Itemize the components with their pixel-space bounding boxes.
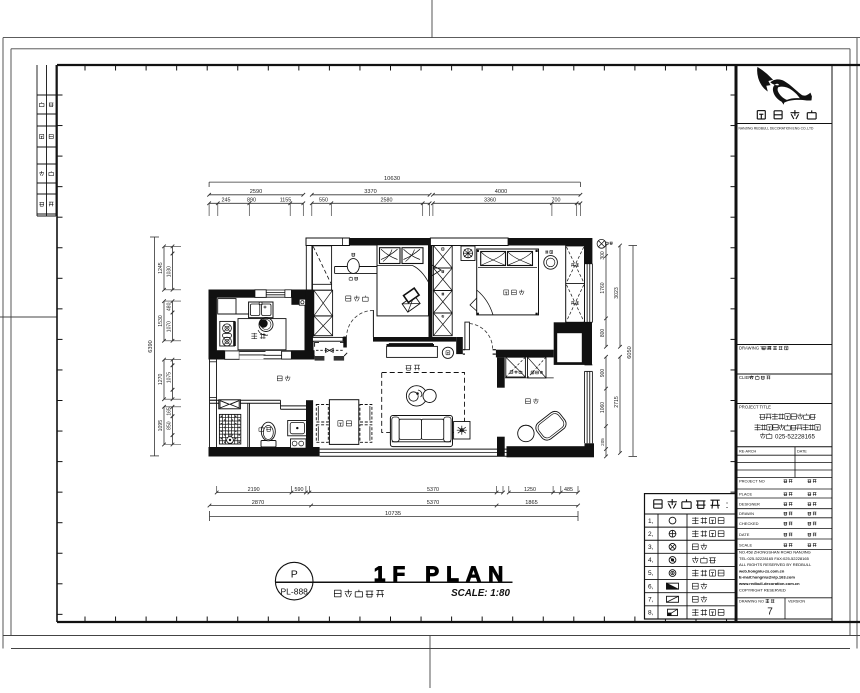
svg-text:700: 700 [552,197,561,203]
svg-text:PROJECT NO: PROJECT NO [739,479,765,484]
svg-text:1530: 1530 [158,315,164,327]
svg-text:ALL RIGHTS RESERVED BY REDBULL: ALL RIGHTS RESERVED BY REDBULL [739,562,812,567]
svg-text:165: 165 [167,407,173,416]
svg-text:3,: 3, [648,544,654,551]
svg-text:DRAWING NO: DRAWING NO [739,600,764,604]
svg-text:10735: 10735 [385,511,401,517]
svg-text:1865: 1865 [525,500,537,506]
svg-text:800: 800 [600,329,606,338]
svg-text:2580: 2580 [381,197,393,203]
svg-text:3023: 3023 [614,287,620,299]
svg-text:1,: 1, [648,518,654,525]
svg-text:5370: 5370 [427,500,439,506]
svg-text:485: 485 [564,487,573,493]
svg-text:NO.458 ZHONGSHAN ROAD NANJING: NO.458 ZHONGSHAN ROAD NANJING [739,550,811,555]
svg-text::: : [726,500,729,511]
svg-text:PL-888: PL-888 [280,587,308,597]
svg-text:3360: 3360 [484,197,496,203]
svg-text:VERSION: VERSION [788,600,805,604]
svg-text:E-mail:hongniu@vip.163.com: E-mail:hongniu@vip.163.com [739,575,795,580]
svg-text:5370: 5370 [427,487,439,493]
svg-text:1270: 1270 [158,374,164,386]
svg-text:6050: 6050 [627,346,633,358]
svg-text:DRAWN: DRAWN [739,511,754,516]
svg-text:1070: 1070 [167,321,173,332]
svg-text:RE-ARCH: RE-ARCH [739,450,757,454]
svg-text:DATE: DATE [797,450,807,454]
svg-text:PROJECT TITLE: PROJECT TITLE [739,405,771,410]
svg-text:6,: 6, [648,583,654,590]
svg-text:TEL:025-52228165 FAX:025-5222: TEL:025-52228165 FAX:025-52228165 [739,556,810,561]
svg-text:DESIGNER: DESIGNER [739,502,760,507]
svg-text:3370: 3370 [364,189,376,195]
svg-text:PLACE: PLACE [739,492,752,497]
svg-text:2870: 2870 [252,500,264,506]
svg-text:4,: 4, [648,557,654,564]
svg-text:DATE: DATE [739,532,750,537]
svg-text:2715: 2715 [614,396,620,408]
svg-text:10630: 10630 [384,176,400,182]
svg-text:205: 205 [600,438,605,446]
svg-text:DRAWING TITLE: DRAWING TITLE [739,346,772,351]
svg-text:1250: 1250 [524,487,536,493]
svg-text:4000: 4000 [495,189,507,195]
svg-text:7,: 7, [648,596,654,603]
svg-text:300: 300 [600,251,606,260]
svg-text:245: 245 [222,197,231,203]
svg-text:SCALE: 1:80: SCALE: 1:80 [451,588,510,599]
svg-text:1155: 1155 [280,197,292,203]
svg-text:COPYRIGHT RESERVED: COPYRIGHT RESERVED [739,587,786,592]
svg-text:1F PLAN: 1F PLAN [374,563,511,586]
svg-text:SCALE: SCALE [739,543,752,548]
svg-text:890: 890 [247,197,256,203]
svg-text:550: 550 [319,197,328,203]
svg-text:CHECKED: CHECKED [739,521,759,526]
svg-text:1245: 1245 [158,262,164,274]
svg-text:8,: 8, [648,610,654,617]
svg-text:2590: 2590 [250,189,262,195]
svg-text:5,: 5, [648,570,654,577]
svg-text:2,: 2, [648,531,654,538]
svg-text:1095: 1095 [158,420,164,432]
svg-text:7: 7 [767,607,773,618]
svg-text:6390: 6390 [148,340,154,352]
svg-text:590: 590 [295,487,304,493]
svg-text:1760: 1760 [600,282,606,293]
svg-text:900: 900 [600,369,606,378]
svg-text:1075: 1075 [167,372,173,383]
svg-text:2190: 2190 [248,487,260,493]
svg-text:P: P [291,569,298,581]
svg-text:1060: 1060 [600,402,606,413]
svg-text:850: 850 [167,421,173,430]
svg-text:web.hongniu-zs.com.cn: web.hongniu-zs.com.cn [738,568,785,573]
svg-text:025-52228165: 025-52228165 [775,433,815,440]
svg-text:1030: 1030 [167,266,173,277]
svg-text:480: 480 [167,302,173,311]
svg-text:www.redbull-decoration.com.cn: www.redbull-decoration.com.cn [738,581,800,586]
svg-text:NANJING REDBULL DECORATION ENG: NANJING REDBULL DECORATION ENG CO.,LTD [739,127,814,131]
